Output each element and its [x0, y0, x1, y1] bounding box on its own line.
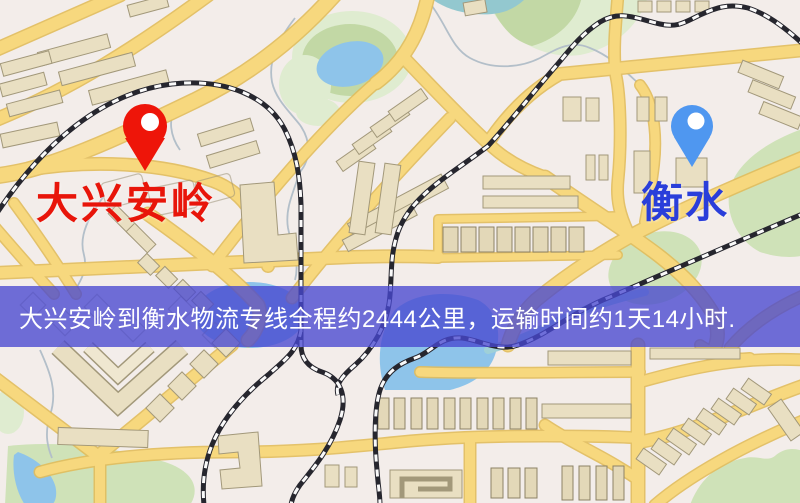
origin-pin-icon[interactable]: [117, 100, 175, 176]
route-info-banner: 大兴安岭到衡水物流专线全程约2444公里，运输时间约1天14小时.: [0, 286, 800, 347]
destination-pin-icon[interactable]: [668, 103, 718, 173]
origin-label: 大兴安岭: [36, 183, 216, 225]
destination-label: 衡水: [641, 182, 729, 224]
logistics-route-map: 大兴安岭 衡水 大兴安岭到衡水物流专线全程约2444公里，运输时间约1天14小时…: [0, 0, 800, 503]
map-base-art: [0, 0, 800, 503]
route-info-text: 大兴安岭到衡水物流专线全程约2444公里，运输时间约1天14小时.: [19, 299, 736, 334]
